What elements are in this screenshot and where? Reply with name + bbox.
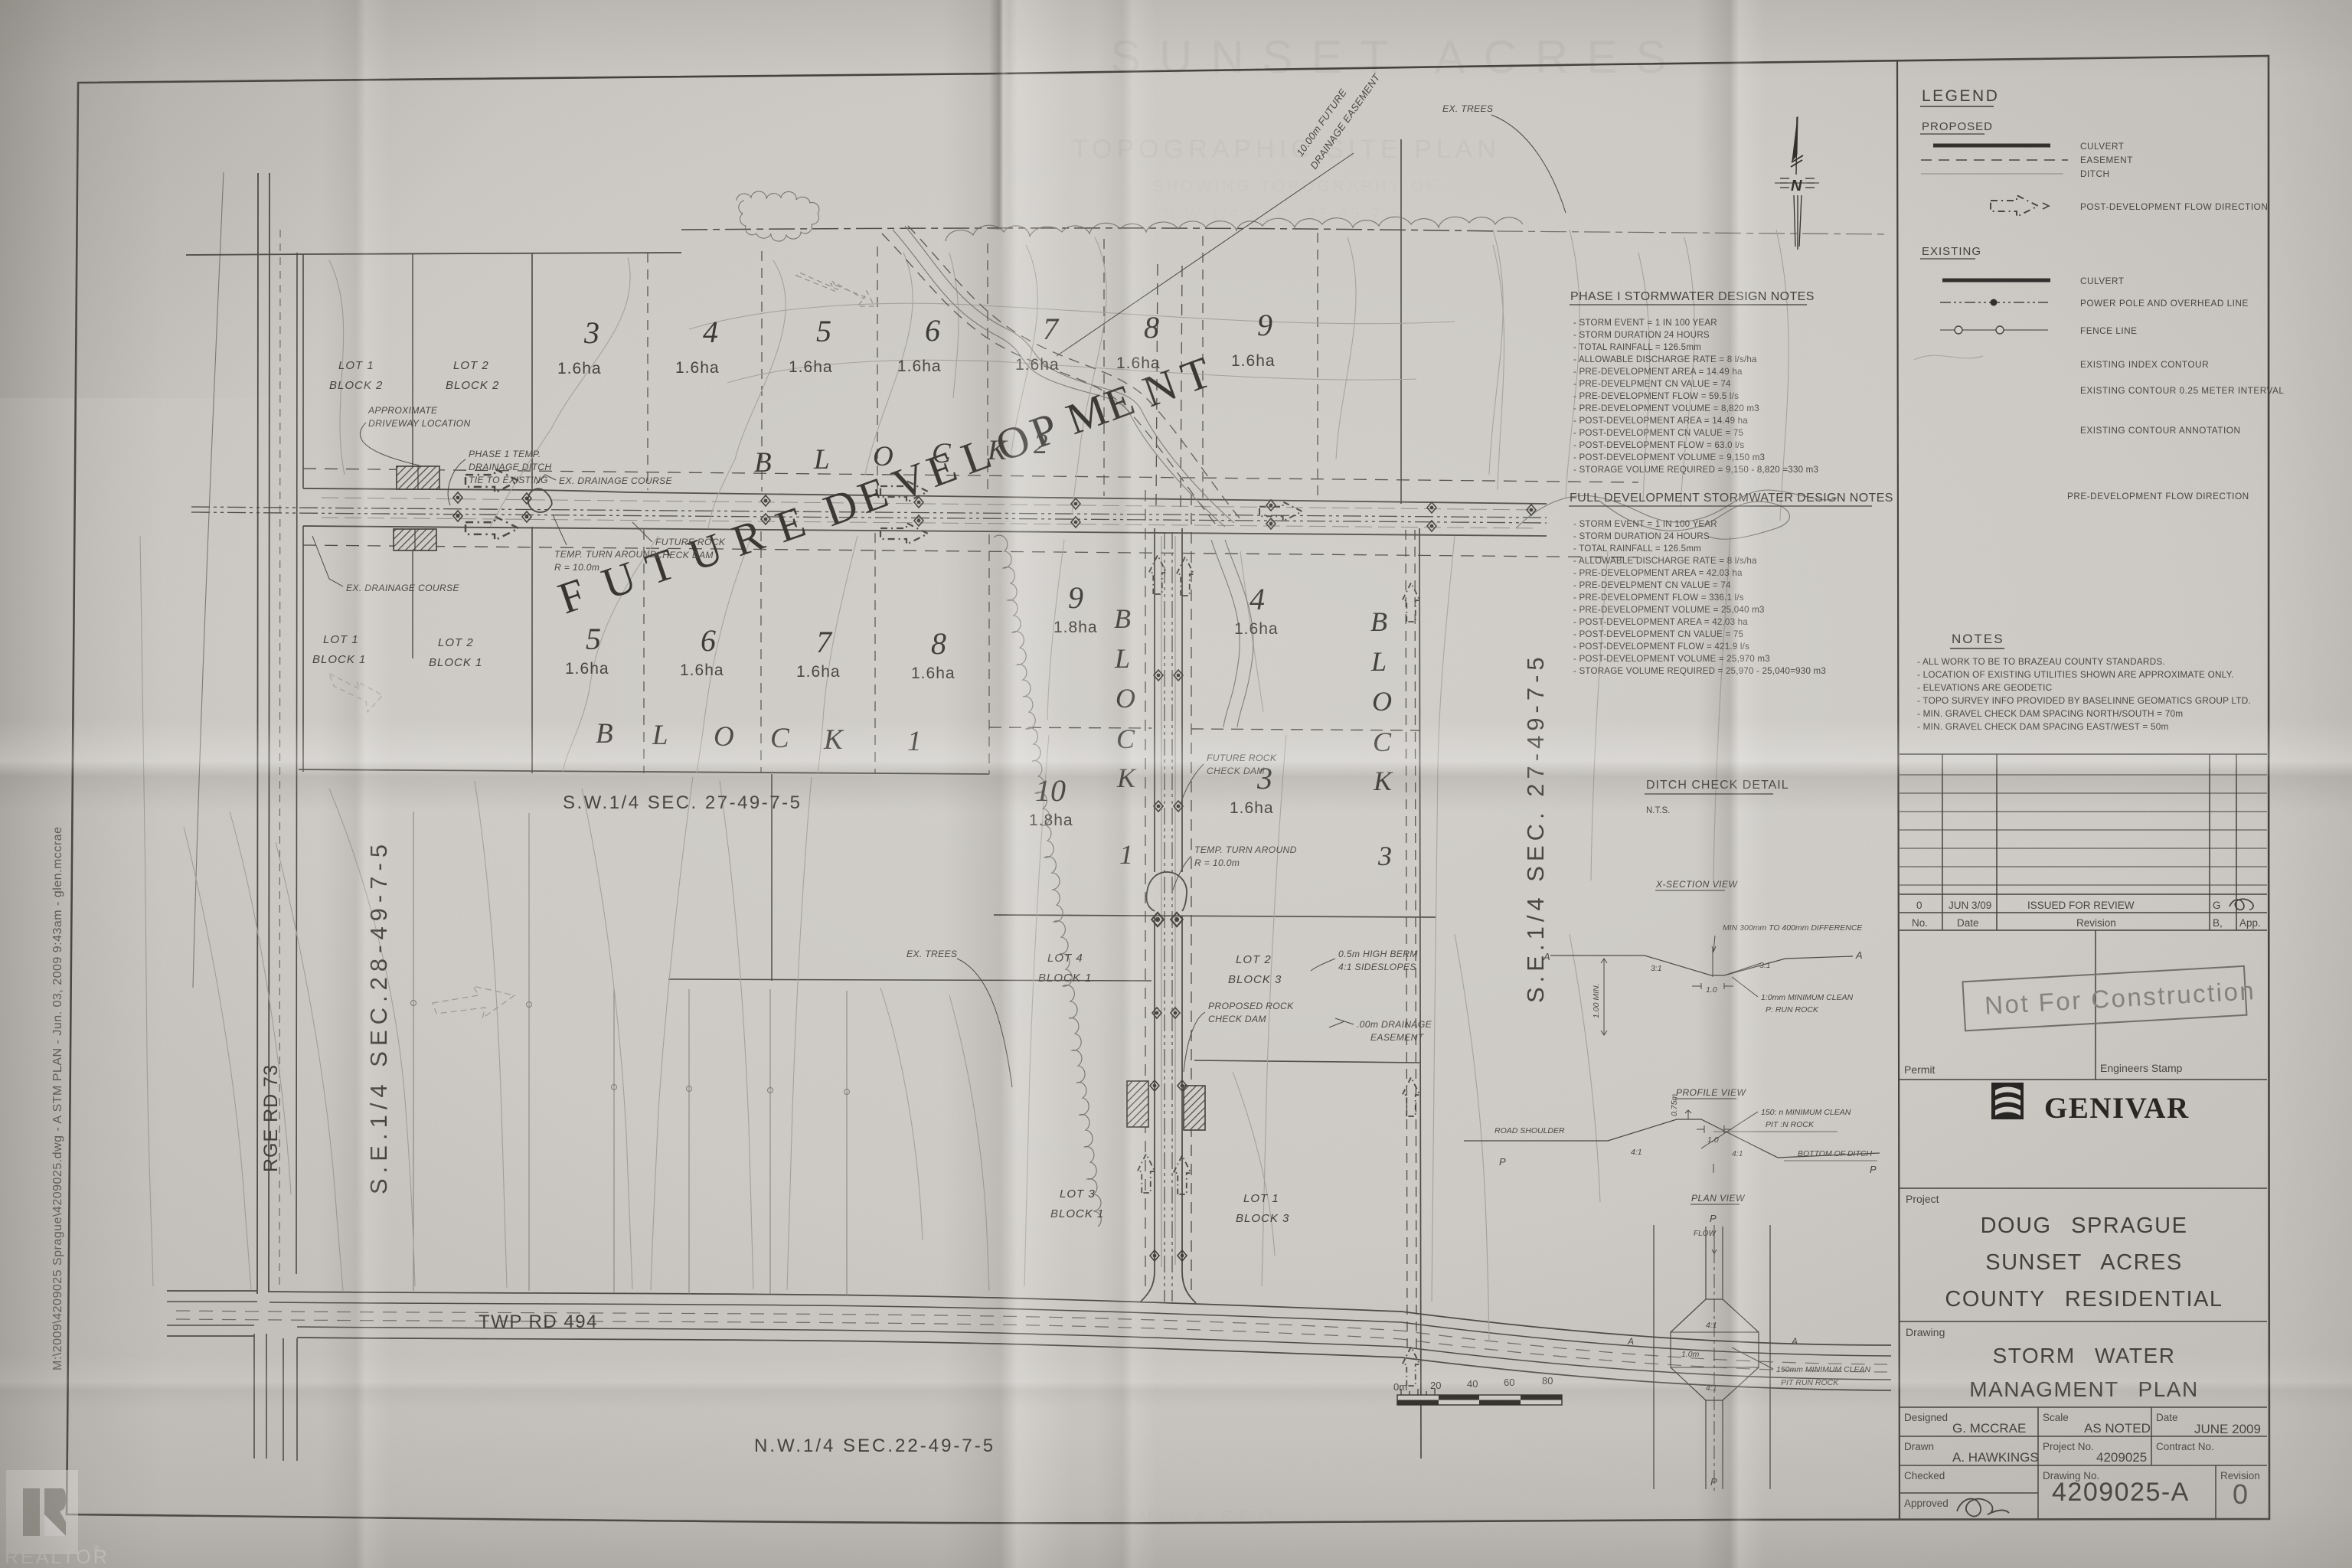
- svg-text:N.W.1/4 SEC.22-49-7-5: N.W.1/4 SEC.22-49-7-5: [754, 1436, 995, 1456]
- svg-text:P: P: [1710, 1476, 1717, 1488]
- svg-text:K: K: [987, 435, 1008, 466]
- svg-text:FUTURE ROCK: FUTURE ROCK: [1207, 753, 1277, 763]
- svg-text:TWP RD 494: TWP RD 494: [479, 1312, 598, 1332]
- svg-text:APPROXIMATE: APPROXIMATE: [367, 405, 438, 416]
- svg-text:CHECK DAM: CHECK DAM: [655, 550, 714, 560]
- svg-text:20: 20: [1430, 1380, 1441, 1391]
- svg-text:0: 0: [1916, 900, 1922, 911]
- svg-text:N: N: [1791, 178, 1802, 194]
- svg-text:PRE-DEVELOPMENT FLOW DIRECTION: PRE-DEVELOPMENT FLOW DIRECTION: [2067, 491, 2249, 501]
- svg-text:PHASE 1 TEMP.: PHASE 1 TEMP.: [469, 449, 541, 459]
- svg-text:Scale: Scale: [2043, 1412, 2069, 1423]
- svg-text:GENIVAR: GENIVAR: [2044, 1092, 2190, 1125]
- svg-text:4:1: 4:1: [1732, 1149, 1743, 1158]
- svg-text:DOUG SPRAGUE: DOUG SPRAGUE: [1981, 1214, 2188, 1238]
- svg-text:No.: No.: [1912, 917, 1928, 929]
- svg-text:LOT 2: LOT 2: [453, 359, 489, 372]
- svg-text:C: C: [1373, 727, 1392, 757]
- svg-text:- POST-DEVELOPMENT CN VALUE =: - POST-DEVELOPMENT CN VALUE = 75: [1573, 428, 1743, 438]
- svg-text:S.W.1/4 SEC: S.W.1/4 SEC: [1102, 1506, 1278, 1530]
- svg-text:- STORM EVENT = 1 IN 100 YEAR: - STORM EVENT = 1 IN 100 YEAR: [1573, 318, 1717, 328]
- svg-text:App.: App.: [2239, 917, 2261, 929]
- svg-text:8: 8: [931, 626, 946, 661]
- svg-text:Engineers Stamp: Engineers Stamp: [2100, 1062, 2183, 1074]
- svg-text:1.6ha: 1.6ha: [1234, 620, 1279, 638]
- svg-text:- TOPO SURVEY INFO PROVIDED BY: - TOPO SURVEY INFO PROVIDED BY BASELINNE…: [1917, 695, 2251, 706]
- svg-text:BLOCK 2: BLOCK 2: [446, 379, 499, 392]
- svg-text:L: L: [1370, 646, 1387, 677]
- svg-text:B: B: [1370, 606, 1387, 637]
- svg-text:150mm MINIMUM CLEAN: 150mm MINIMUM CLEAN: [1776, 1365, 1871, 1374]
- svg-text:Project No.: Project No.: [2043, 1441, 2094, 1452]
- svg-text:PIT :N ROCK: PIT :N ROCK: [1766, 1120, 1815, 1129]
- svg-text:®: ®: [93, 1544, 100, 1553]
- svg-text:B,: B,: [2213, 917, 2223, 929]
- svg-text:- PRE-DEVELOPMENT AREA = 14.49: - PRE-DEVELOPMENT AREA = 14.49 ha: [1573, 367, 1743, 377]
- svg-text:FUTURE ROCK: FUTURE ROCK: [655, 537, 726, 547]
- svg-text:FENCE LINE: FENCE LINE: [2080, 325, 2138, 336]
- svg-text:- STORM DURATION 24 HOURS: - STORM DURATION 24 HOURS: [1573, 531, 1710, 541]
- svg-text:N.T.S.: N.T.S.: [1646, 806, 1670, 815]
- svg-text:4: 4: [1249, 582, 1265, 616]
- svg-text:4:1 SIDESLOPES: 4:1 SIDESLOPES: [1338, 962, 1416, 972]
- svg-text:EX. TREES: EX. TREES: [1442, 103, 1493, 114]
- svg-text:BLOCK 1: BLOCK 1: [312, 653, 366, 666]
- svg-text:1.6ha: 1.6ha: [1015, 356, 1060, 374]
- svg-text:10: 10: [1035, 773, 1066, 808]
- svg-text:Revision: Revision: [2076, 917, 2116, 929]
- svg-text:5: 5: [586, 622, 601, 656]
- svg-text:Date: Date: [2156, 1412, 2178, 1423]
- svg-text:EXISTING CONTOUR ANNOTATION: EXISTING CONTOUR ANNOTATION: [2080, 425, 2240, 436]
- svg-text:- PRE-DEVELOPMENT FLOW = 59.5: - PRE-DEVELOPMENT FLOW = 59.5 l/s: [1573, 391, 1739, 401]
- svg-text:- LOCATION OF EXISTING UTILITI: - LOCATION OF EXISTING UTILITIES SHOWN A…: [1917, 669, 2234, 680]
- svg-text:TOPOGRAPHIC SITE PLAN: TOPOGRAPHIC SITE PLAN: [1072, 135, 1501, 164]
- svg-text:0.75m: 0.75m: [1670, 1094, 1679, 1116]
- svg-text:G: G: [2213, 900, 2221, 911]
- svg-text:1.8ha: 1.8ha: [1029, 812, 1073, 829]
- svg-text:Contract No.: Contract No.: [2156, 1441, 2214, 1452]
- svg-text:Designed: Designed: [1904, 1412, 1948, 1423]
- svg-text:- PRE-DEVELPMENT CN VALUE = 74: - PRE-DEVELPMENT CN VALUE = 74: [1573, 379, 1731, 389]
- svg-text:DITCH CHECK DETAIL: DITCH CHECK DETAIL: [1646, 779, 1789, 792]
- svg-text:MANAGMENT PLAN: MANAGMENT PLAN: [1969, 1377, 2198, 1401]
- svg-text:R = 10.0m: R = 10.0m: [1194, 857, 1240, 868]
- svg-text:B: B: [754, 447, 772, 479]
- svg-text:FULL DEVELOPMENT STORMWATER DE: FULL DEVELOPMENT STORMWATER DESIGN NOTES: [1570, 492, 1893, 505]
- svg-text:O: O: [1116, 683, 1135, 714]
- svg-text:1.6ha: 1.6ha: [1231, 352, 1276, 370]
- svg-text:JUNE 2009: JUNE 2009: [2194, 1422, 2261, 1436]
- svg-text:- POST-DEVELOPMENT AREA = 14.4: - POST-DEVELOPMENT AREA = 14.49 ha: [1573, 416, 1748, 426]
- svg-text:- PRE-DEVELOPMENT VOLUME = 25,: - PRE-DEVELOPMENT VOLUME = 25,040 m3: [1573, 605, 1765, 615]
- svg-text:BLOCK 1: BLOCK 1: [1038, 972, 1092, 985]
- svg-text:- POST-DEVELOPMENT FLOW = 421.: - POST-DEVELOPMENT FLOW = 421.9 l/s: [1573, 642, 1749, 652]
- svg-text:EXISTING CONTOUR 0.25 METER IN: EXISTING CONTOUR 0.25 METER INTERVAL: [2080, 385, 2284, 396]
- svg-text:- POST-DEVELOPMENT FLOW = 63.0: - POST-DEVELOPMENT FLOW = 63.0 l/s: [1573, 440, 1744, 450]
- svg-text:CULVERT: CULVERT: [2080, 141, 2124, 152]
- svg-text:LOT 2: LOT 2: [1236, 953, 1272, 966]
- svg-text:JUN 3/09: JUN 3/09: [1949, 900, 1991, 911]
- svg-text:- ALLOWABLE DISCHARGE RATE = 8: - ALLOWABLE DISCHARGE RATE = 8 l/s/ha: [1573, 556, 1757, 566]
- svg-text:LOT 1: LOT 1: [1243, 1192, 1279, 1205]
- svg-text:1.0: 1.0: [1706, 985, 1717, 995]
- svg-text:A: A: [1855, 949, 1863, 961]
- svg-text:Approved: Approved: [1904, 1498, 1949, 1509]
- svg-text:- TOTAL RAINFALL = 126.5mm: - TOTAL RAINFALL = 126.5mm: [1573, 342, 1701, 352]
- svg-text:Date: Date: [1957, 917, 1979, 929]
- svg-text:1.6ha: 1.6ha: [565, 660, 609, 678]
- svg-text:1.6ha: 1.6ha: [789, 358, 833, 376]
- svg-text:BLOCK 2: BLOCK 2: [329, 379, 383, 392]
- svg-text:PROPOSED: PROPOSED: [1922, 120, 1993, 133]
- svg-text:A: A: [1791, 1336, 1798, 1347]
- svg-text:DRIVEWAY LOCATION: DRIVEWAY LOCATION: [368, 418, 471, 429]
- svg-text:Checked: Checked: [1904, 1470, 1945, 1481]
- svg-text:PIT RUN ROCK: PIT RUN ROCK: [1781, 1378, 1839, 1387]
- svg-text:1.6ha: 1.6ha: [897, 358, 942, 375]
- svg-text:P: P: [1870, 1164, 1877, 1175]
- svg-text:LEGEND: LEGEND: [1922, 87, 1999, 105]
- svg-text:- TOTAL RAINFALL = 126.5mm: - TOTAL RAINFALL = 126.5mm: [1573, 544, 1701, 554]
- svg-text:BLOCK 1: BLOCK 1: [429, 656, 482, 669]
- svg-text:S.W.1/4 SEC. 27-49-7-5: S.W.1/4 SEC. 27-49-7-5: [563, 792, 802, 813]
- svg-text:3:1: 3:1: [1651, 964, 1662, 973]
- svg-text:A. HAWKINGS: A. HAWKINGS: [1952, 1450, 2039, 1465]
- svg-text:- ALL WORK TO BE TO BRAZEAU CO: - ALL WORK TO BE TO BRAZEAU COUNTY STAND…: [1917, 656, 2165, 667]
- svg-text:0.5m HIGH BERM: 0.5m HIGH BERM: [1338, 949, 1418, 959]
- svg-text:EXISTING: EXISTING: [1922, 245, 1981, 258]
- svg-text:SUNSET ACRES: SUNSET ACRES: [1110, 31, 1684, 83]
- svg-text:6: 6: [701, 623, 716, 658]
- svg-text:60: 60: [1504, 1377, 1514, 1388]
- svg-text:AS NOTED: AS NOTED: [2084, 1421, 2151, 1436]
- svg-text:1.6ha: 1.6ha: [675, 359, 720, 377]
- svg-text:8: 8: [1144, 310, 1159, 345]
- svg-text:CHECK DAM: CHECK DAM: [1208, 1014, 1266, 1024]
- svg-text:5: 5: [816, 314, 831, 348]
- svg-text:RGE RD 73: RGE RD 73: [260, 1064, 282, 1172]
- svg-text:- POST-DEVELOPMENT VOLUME = 9,: - POST-DEVELOPMENT VOLUME = 9,150 m3: [1573, 452, 1765, 462]
- svg-text:1.8ha: 1.8ha: [1053, 619, 1098, 636]
- svg-text:K: K: [823, 724, 844, 756]
- svg-text:EASEMENT: EASEMENT: [2080, 155, 2133, 165]
- svg-text:C: C: [932, 438, 952, 469]
- svg-text:EX. TREES: EX. TREES: [906, 949, 957, 959]
- svg-text:CULVERT: CULVERT: [2080, 276, 2124, 286]
- svg-text:P: P: [1499, 1156, 1506, 1168]
- svg-text:9: 9: [1257, 308, 1272, 342]
- svg-text:1:0mm MINIMUM CLEAN: 1:0mm MINIMUM CLEAN: [1761, 993, 1854, 1002]
- svg-text:A: A: [1543, 951, 1550, 962]
- svg-text:L: L: [652, 720, 668, 751]
- svg-text:BLOCK 3: BLOCK 3: [1236, 1212, 1289, 1225]
- svg-text:COUNTY RESIDENTIAL: COUNTY RESIDENTIAL: [1945, 1287, 2223, 1312]
- svg-text:C: C: [770, 723, 790, 754]
- svg-text:TEMP. TURN AROUND: TEMP. TURN AROUND: [1194, 844, 1297, 855]
- svg-text:1.6ha: 1.6ha: [911, 665, 955, 682]
- svg-text:ISSUED FOR REVIEW: ISSUED FOR REVIEW: [2027, 900, 2135, 911]
- svg-text:L: L: [1114, 643, 1130, 674]
- svg-text:1.6ha: 1.6ha: [1230, 799, 1274, 817]
- svg-text:1.6ha: 1.6ha: [796, 663, 841, 681]
- svg-text:- MIN. GRAVEL CHECK DAM SPACIN: - MIN. GRAVEL CHECK DAM SPACING NORTH/SO…: [1917, 708, 2183, 719]
- svg-text:X-SECTION VIEW: X-SECTION VIEW: [1655, 879, 1739, 890]
- svg-text:TEMP. TURN AROUND: TEMP. TURN AROUND: [554, 549, 657, 560]
- svg-text:- MIN. GRAVEL CHECK DAM SPACIN: - MIN. GRAVEL CHECK DAM SPACING EAST/WES…: [1917, 721, 2169, 732]
- svg-text:7: 7: [816, 625, 833, 659]
- svg-text:L: L: [813, 444, 830, 475]
- svg-text:NOTES: NOTES: [1952, 632, 2004, 646]
- svg-text:1: 1: [1119, 839, 1133, 870]
- svg-text:1.6ha: 1.6ha: [1116, 354, 1161, 372]
- svg-text:PLAN VIEW: PLAN VIEW: [1691, 1193, 1746, 1204]
- svg-text:1.6ha: 1.6ha: [680, 661, 724, 679]
- svg-text:0m: 0m: [1393, 1381, 1407, 1393]
- svg-text:- STORAGE VOLUME REQUIRED = 9,: - STORAGE VOLUME REQUIRED = 9,150 - 8,82…: [1573, 465, 1818, 475]
- svg-text:40: 40: [1467, 1378, 1478, 1390]
- svg-text:DITCH: DITCH: [2080, 168, 2110, 179]
- svg-text:CHECK DAM: CHECK DAM: [1207, 766, 1265, 776]
- svg-text:POST-DEVELOPMENT FLOW DIRECTIO: POST-DEVELOPMENT FLOW DIRECTION: [2080, 201, 2268, 212]
- svg-text:EXISTING INDEX CONTOUR: EXISTING INDEX CONTOUR: [2080, 359, 2209, 370]
- svg-text:- PRE-DEVELPMENT CN VALUE = 74: - PRE-DEVELPMENT CN VALUE = 74: [1573, 580, 1731, 590]
- svg-text:1.0m: 1.0m: [1681, 1350, 1700, 1359]
- svg-text:C: C: [1116, 724, 1135, 754]
- svg-text:P: P: [1710, 1213, 1717, 1224]
- svg-text:K: K: [1116, 763, 1137, 793]
- svg-text:DRAINAGE DITCH: DRAINAGE DITCH: [469, 462, 551, 472]
- svg-text:4:1: 4:1: [1706, 1321, 1717, 1330]
- svg-text:BLOCK 3: BLOCK 3: [1228, 973, 1282, 986]
- svg-text:P: RUN ROCK: P: RUN ROCK: [1766, 1005, 1819, 1014]
- svg-text:PROFILE VIEW: PROFILE VIEW: [1676, 1087, 1747, 1098]
- svg-text:80: 80: [1542, 1375, 1553, 1387]
- svg-text:LOT 1: LOT 1: [323, 633, 359, 646]
- svg-text:Drawing: Drawing: [1906, 1326, 1945, 1338]
- svg-text:B: B: [1114, 603, 1131, 634]
- svg-text:G. MCCRAE: G. MCCRAE: [1952, 1421, 2026, 1436]
- svg-text:0: 0: [2233, 1478, 2248, 1510]
- svg-text:3: 3: [1377, 841, 1392, 871]
- svg-text:K: K: [1373, 766, 1393, 796]
- svg-text:M:\2009\4209025 Sprague\42090: M:\2009\4209025 Sprague\4209025.dwg - A …: [51, 827, 64, 1370]
- svg-text:B: B: [596, 718, 613, 750]
- svg-text:R = 10.0m: R = 10.0m: [554, 562, 599, 573]
- svg-text:7: 7: [1043, 312, 1060, 346]
- svg-text:.00m DRAINAGE: .00m DRAINAGE: [1357, 1019, 1432, 1030]
- svg-text:4: 4: [703, 315, 718, 349]
- svg-text:STORM WATER: STORM WATER: [1993, 1344, 2176, 1367]
- svg-text:- PRE-DEVELOPMENT AREA = 42.03: - PRE-DEVELOPMENT AREA = 42.03 ha: [1573, 568, 1743, 578]
- svg-text:EASEMENT: EASEMENT: [1370, 1032, 1425, 1043]
- svg-text:EX. DRAINAGE COURSE: EX. DRAINAGE COURSE: [559, 475, 672, 486]
- svg-text:4:1: 4:1: [1631, 1148, 1642, 1157]
- svg-text:LOT 2: LOT 2: [438, 636, 474, 649]
- svg-text:- STORAGE VOLUME REQUIRED = 25: - STORAGE VOLUME REQUIRED = 25,970 - 25,…: [1573, 666, 1826, 676]
- svg-text:MIN 300mm TO 400mm DIFFERENCE: MIN 300mm TO 400mm DIFFERENCE: [1723, 923, 1863, 933]
- svg-text:- ALLOWABLE DISCHARGE RATE = 8: - ALLOWABLE DISCHARGE RATE = 8 l/s/ha: [1573, 354, 1757, 364]
- svg-text:- POST-DEVELOPMENT AREA = 42.0: - POST-DEVELOPMENT AREA = 42.03 ha: [1573, 617, 1748, 627]
- svg-text:Permit: Permit: [1904, 1063, 1935, 1076]
- svg-text:3:1: 3:1: [1759, 961, 1771, 970]
- svg-text:1: 1: [907, 726, 922, 757]
- svg-text:EX. DRAINAGE COURSE: EX. DRAINAGE COURSE: [346, 583, 459, 593]
- svg-text:O: O: [873, 441, 893, 472]
- svg-text:LOT 1: LOT 1: [338, 359, 374, 372]
- svg-text:POWER POLE AND OVERHEAD LINE: POWER POLE AND OVERHEAD LINE: [2080, 298, 2249, 309]
- svg-text:Drawn: Drawn: [1904, 1441, 1934, 1452]
- svg-text:- STORM DURATION 24 HOURS: - STORM DURATION 24 HOURS: [1573, 330, 1710, 340]
- svg-text:4209025-A: 4209025-A: [2052, 1478, 2190, 1507]
- svg-text:6: 6: [925, 313, 940, 348]
- svg-text:A: A: [1627, 1336, 1634, 1347]
- svg-text:BLOCK 1: BLOCK 1: [1050, 1207, 1104, 1220]
- svg-text:PHASE I STORMWATER DESIGN NOTE: PHASE I STORMWATER DESIGN NOTES: [1570, 290, 1815, 303]
- svg-text:3: 3: [583, 315, 599, 350]
- svg-text:9: 9: [1068, 580, 1083, 615]
- svg-text:2: 2: [1034, 429, 1048, 460]
- svg-text:- PRE-DEVELOPMENT VOLUME = 8,8: - PRE-DEVELOPMENT VOLUME = 8,820 m3: [1573, 403, 1759, 413]
- svg-text:FLOW: FLOW: [1694, 1230, 1717, 1238]
- svg-text:S.E.1/4 SEC.28-49-7-5: S.E.1/4 SEC.28-49-7-5: [365, 839, 392, 1194]
- svg-text:4209025: 4209025: [2096, 1450, 2147, 1465]
- svg-text:LOT 3: LOT 3: [1060, 1187, 1096, 1200]
- svg-text:BOTTOM OF DITCH: BOTTOM OF DITCH: [1798, 1149, 1872, 1158]
- svg-text:Project: Project: [1906, 1193, 1939, 1205]
- svg-text:1.00 MIN.: 1.00 MIN.: [1592, 983, 1601, 1018]
- svg-text:O: O: [1372, 686, 1392, 717]
- svg-text:1.6ha: 1.6ha: [557, 360, 602, 377]
- svg-text:- ELEVATIONS ARE GEODETIC: - ELEVATIONS ARE GEODETIC: [1917, 682, 2053, 693]
- svg-text:ROAD SHOULDER: ROAD SHOULDER: [1494, 1126, 1565, 1135]
- svg-text:- STORM EVENT = 1 IN 100 YEAR: - STORM EVENT = 1 IN 100 YEAR: [1573, 519, 1717, 529]
- svg-text:O: O: [714, 721, 734, 753]
- svg-text:- POST-DEVELOPMENT VOLUME = 25: - POST-DEVELOPMENT VOLUME = 25,970 m3: [1573, 654, 1770, 664]
- svg-text:PROPOSED ROCK: PROPOSED ROCK: [1208, 1001, 1294, 1011]
- svg-text:- POST-DEVELOPMENT CN VALUE =: - POST-DEVELOPMENT CN VALUE = 75: [1573, 629, 1743, 639]
- svg-text:4:1: 4:1: [1706, 1383, 1717, 1393]
- svg-text:- PRE-DEVELOPMENT FLOW = 336.1: - PRE-DEVELOPMENT FLOW = 336.1 l/s: [1573, 593, 1744, 603]
- svg-text:150: n MINIMUM CLEAN: 150: n MINIMUM CLEAN: [1761, 1108, 1851, 1117]
- svg-text:LOT 4: LOT 4: [1047, 952, 1083, 965]
- svg-text:SUNSET ACRES: SUNSET ACRES: [1985, 1250, 2182, 1275]
- svg-text:1.0: 1.0: [1707, 1135, 1719, 1145]
